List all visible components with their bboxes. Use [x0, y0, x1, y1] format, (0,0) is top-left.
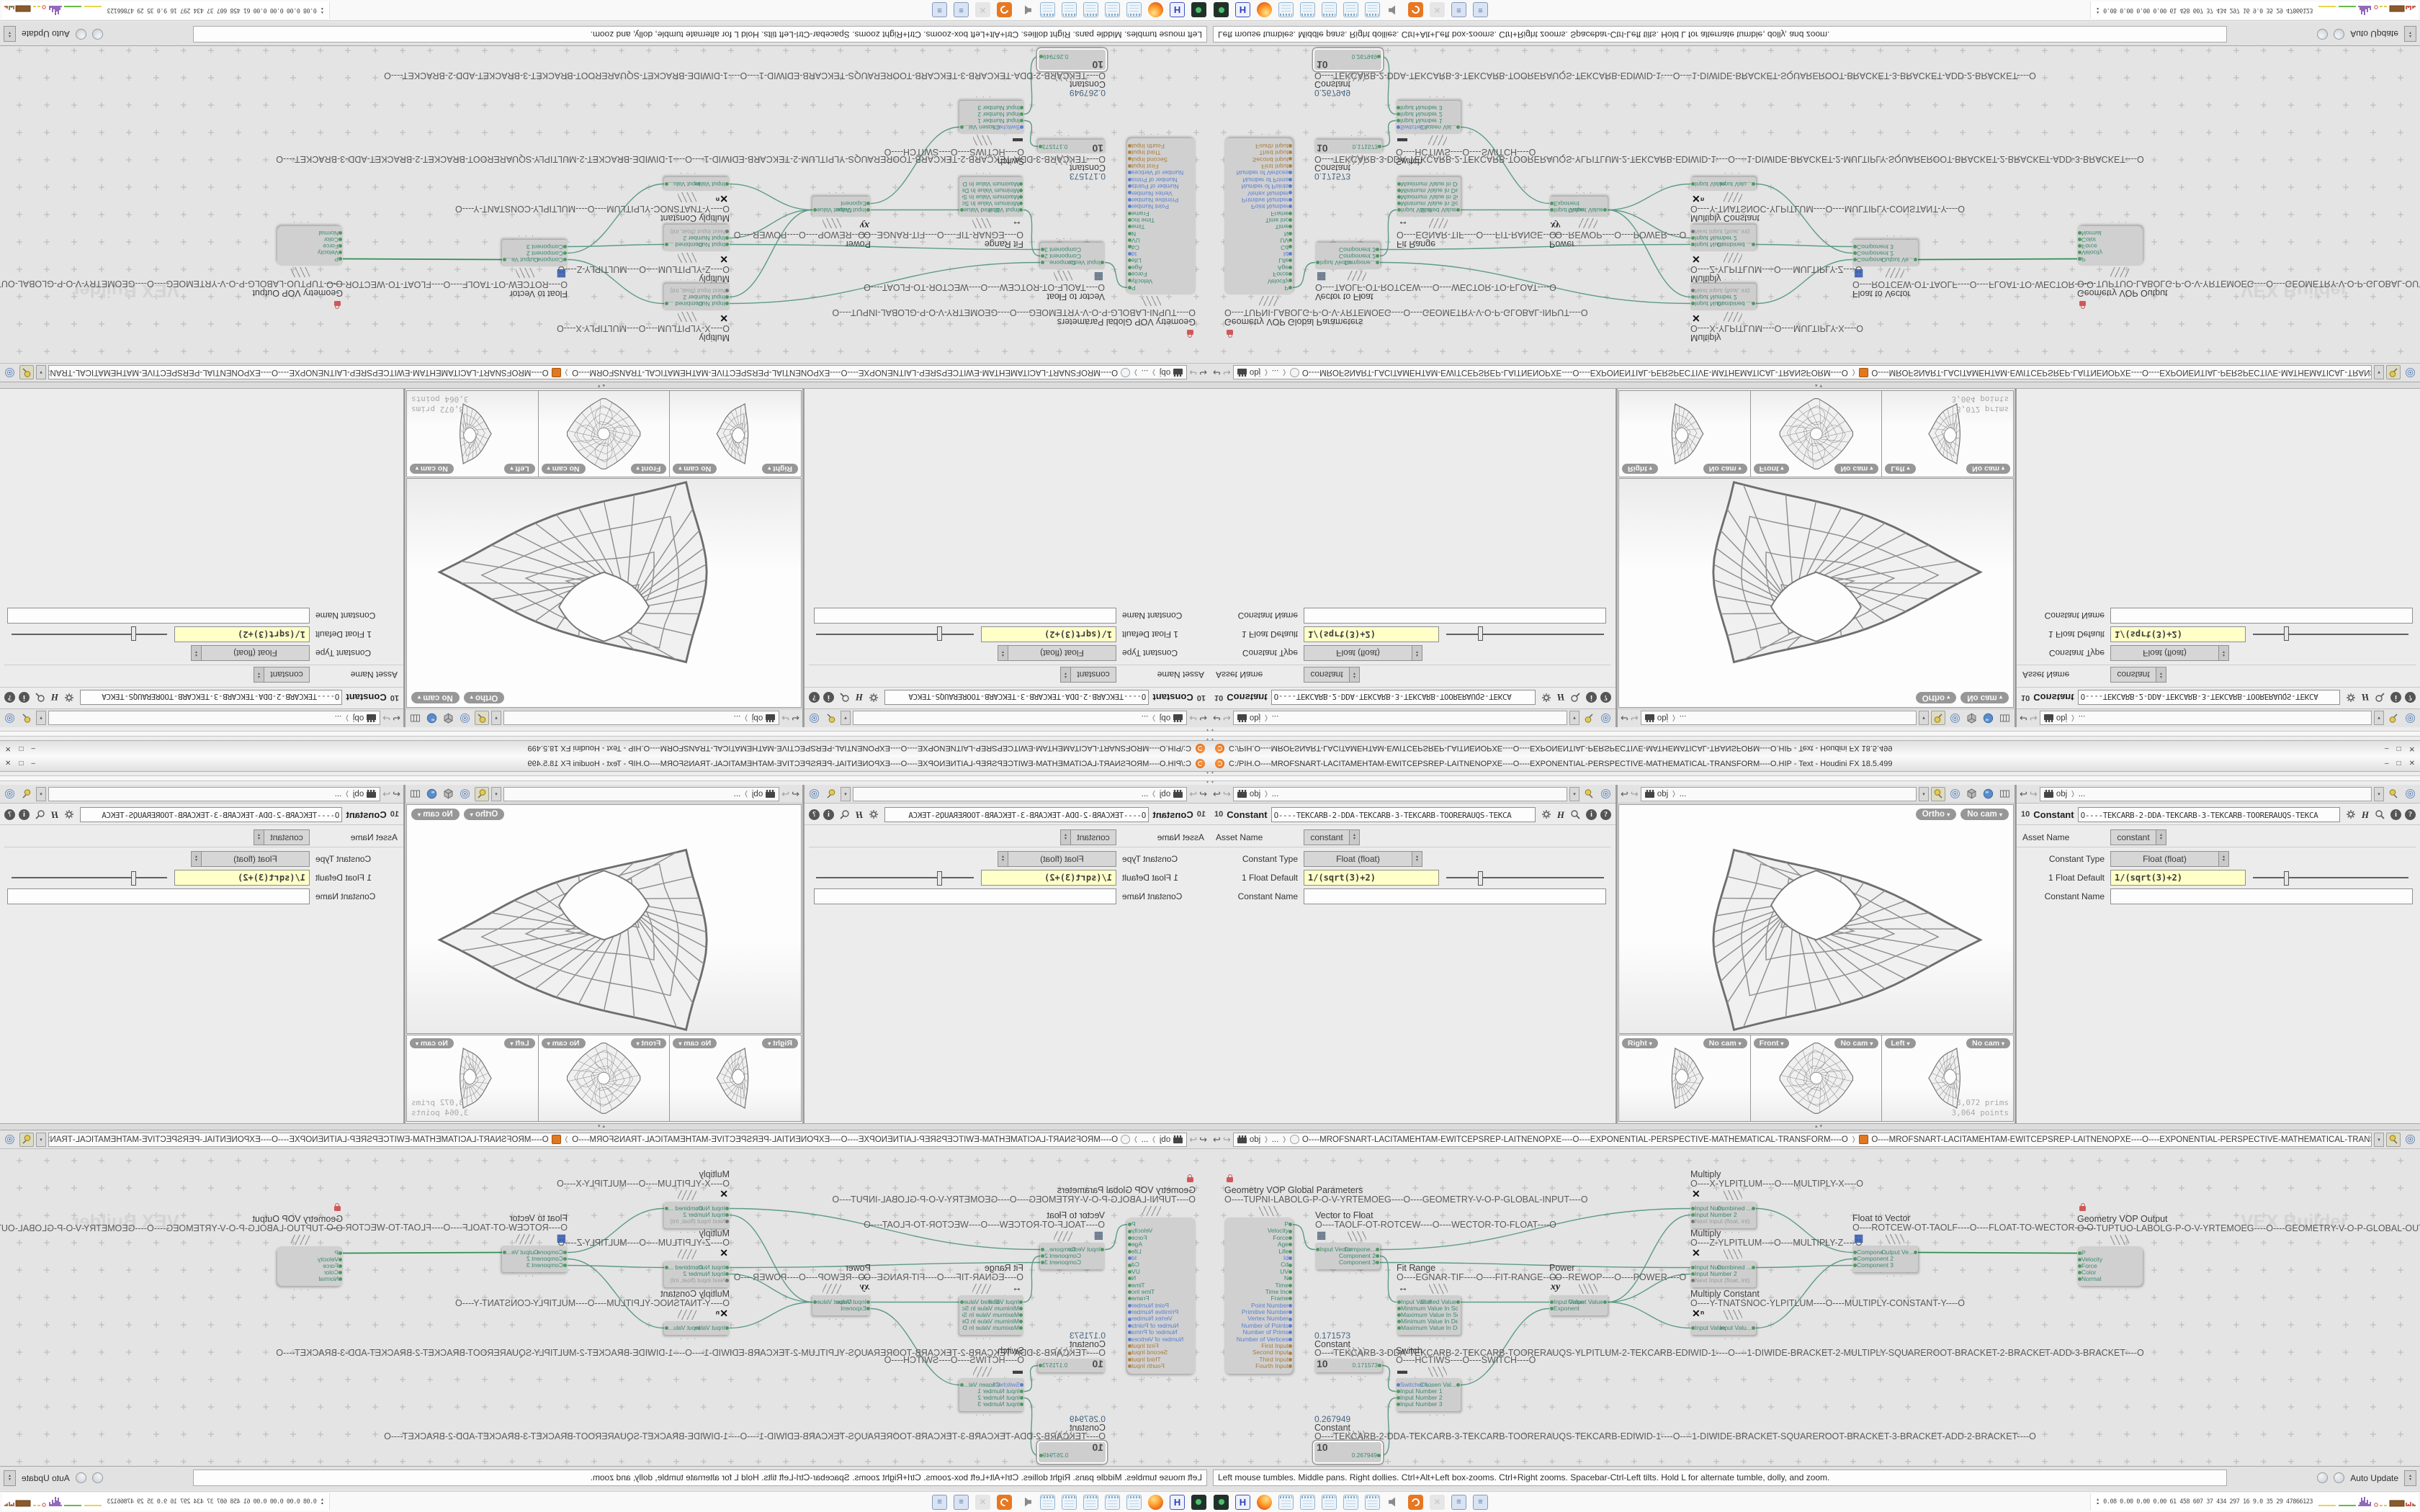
output-port[interactable]: Frame [1131, 210, 1149, 217]
path-dropdown-button[interactable]: ▾ [841, 787, 851, 801]
output-port[interactable]: 0.267949 [1352, 1452, 1377, 1459]
breadcrumb-segment[interactable]: ... [1142, 1135, 1149, 1144]
input-port[interactable]: Velocity [2081, 1256, 2102, 1263]
param-dropdown[interactable]: Float (float)▴▾ [191, 851, 310, 867]
camera-menu-button[interactable]: No cam ▾ [542, 464, 586, 474]
output-port[interactable]: Time Inc [1265, 217, 1289, 223]
output-port[interactable]: Second Input [1131, 156, 1168, 163]
projection-menu-button[interactable]: Ortho ▾ [464, 692, 505, 703]
sync-icon[interactable] [2334, 29, 2344, 40]
forward-icon[interactable]: ↪ [1223, 714, 1231, 723]
expand-shelf-icon[interactable]: ▾ [1211, 771, 1214, 775]
param-dropdown[interactable]: Float (float)▴▾ [1304, 851, 1422, 867]
search-icon[interactable] [838, 690, 852, 705]
collapsed-shelf-strip[interactable] [1210, 731, 2420, 736]
input-port[interactable]: Component 2 [1857, 1256, 1894, 1262]
output-port[interactable]: Output Value [1568, 1299, 1603, 1305]
breadcrumb-segment[interactable]: O----MROFSNART-LACITAMEHTAM-EWITCEPSREP-… [572, 369, 1118, 377]
node-name-field[interactable]: O----TEKCARB-2-DDA-TEKCARB-3-TEKCARB-TOO… [1271, 690, 1536, 706]
input-port[interactable]: Force [323, 243, 339, 249]
houdini-help-h-icon[interactable]: H [856, 693, 863, 703]
gear-icon[interactable] [866, 807, 881, 822]
vop-node-switch[interactable]: Switcher I...Chosen Val...Input Number 1… [1396, 1378, 1461, 1411]
input-port[interactable]: Input Number 2 [683, 1271, 725, 1277]
output-port[interactable]: P [1131, 284, 1136, 291]
node-footer-flags[interactable]: · · · [1142, 131, 1159, 138]
param-slider[interactable] [2253, 626, 2408, 642]
output-port[interactable]: Compone... [1044, 1246, 1076, 1253]
world-sphere-icon[interactable] [425, 711, 439, 726]
node-footer-flags[interactable]: · · · [1350, 132, 1368, 140]
globe-icon[interactable] [92, 29, 103, 40]
camera-menu-button[interactable]: No cam ▾ [1834, 1038, 1878, 1048]
notepad-icon[interactable] [1105, 3, 1120, 18]
path-dropdown-button[interactable]: ▾ [2374, 1133, 2384, 1147]
breadcrumb-more[interactable]: ... [1680, 790, 1687, 798]
link-radar-icon[interactable] [807, 711, 822, 726]
breadcrumb-root[interactable]: obj [2056, 714, 2067, 723]
forward-icon[interactable]: ↪ [1223, 1135, 1231, 1144]
vop-node-global[interactable]: PVelocityForceAgeLifeIdCdUVNTimeTime Inc… [1224, 138, 1293, 294]
output-port[interactable]: Velocity [1268, 278, 1289, 284]
node-footer-flags[interactable]: · · · [516, 233, 534, 240]
camera-menu-button[interactable]: No cam ▾ [411, 692, 460, 703]
houdini-help-h-icon[interactable]: H [856, 810, 863, 819]
sync-icon[interactable] [2334, 1472, 2344, 1483]
output-port[interactable]: Output Ve... [1881, 1249, 1914, 1256]
output-port[interactable]: Frame [1131, 1295, 1149, 1302]
param-dropdown[interactable]: constant▴▾ [1304, 829, 1360, 845]
breadcrumb[interactable]: obj ❭ ... [503, 711, 779, 726]
vop-node-c267[interactable]: 100.267949 [1314, 1442, 1381, 1462]
cube-display-icon[interactable] [1964, 711, 1978, 726]
breadcrumb-segment[interactable]: obj [1250, 1135, 1260, 1144]
input-port[interactable]: Minimum Value In Destina... [962, 187, 1019, 194]
search-icon[interactable] [2372, 807, 2387, 822]
output-port[interactable]: P [1131, 1221, 1136, 1228]
param-expression-field[interactable]: 1/(sqrt(3)+2) [2110, 626, 2246, 642]
output-port[interactable]: Time [1131, 223, 1145, 230]
left-viewport[interactable]: Left ▾ No cam ▾ 3,072 prims 3,064 points [1882, 1035, 2014, 1122]
node-footer-flags[interactable]: · · · [1724, 170, 1742, 177]
param-text-field[interactable] [7, 608, 310, 624]
viewport-layout-icon[interactable] [1997, 787, 2012, 801]
breadcrumb-segment[interactable]: O----MROFSNART-LACITAMEHTAM-EWITCEPSREP-… [1302, 369, 1848, 377]
node-footer-flags[interactable]: · · · [292, 1286, 309, 1293]
launcher-app-icon[interactable] [1214, 3, 1229, 18]
collapsed-shelf-strip[interactable]: ▾ [0, 736, 1210, 740]
minimize-button[interactable]: – [2385, 744, 2389, 752]
input-port[interactable]: Exponent [1554, 1305, 1579, 1312]
auto-update-dropdown[interactable]: ▴▾ [2404, 27, 2416, 42]
path-dropdown-button[interactable]: ▾ [491, 711, 501, 726]
param-text-field[interactable] [2110, 608, 2413, 624]
output-port[interactable]: Vertex Number [1131, 1315, 1173, 1322]
node-footer-flags[interactable]: · · · [1054, 235, 1072, 243]
expand-shelf-icon[interactable]: ▾ [1206, 737, 1209, 741]
info-icon[interactable]: i [823, 809, 834, 820]
tray-expand-icon[interactable]: ▴▴ [321, 1498, 323, 1506]
param-dropdown[interactable]: constant▴▾ [1060, 667, 1116, 683]
param-dropdown[interactable]: Float (float)▴▾ [1304, 645, 1422, 661]
vop-node-mulZ[interactable]: Input Num...Combined ...Input Number 2Ne… [1690, 1261, 1756, 1287]
notepad-icon[interactable] [1040, 3, 1055, 18]
vop-node-switch[interactable]: Switcher I...Chosen Val...Input Number 1… [959, 1378, 1024, 1411]
output-port[interactable]: Output Ve... [506, 1249, 539, 1256]
param-expression-field[interactable]: 1/(sqrt(3)+2) [2110, 870, 2246, 886]
vop-node-c267[interactable]: 100.267949 [1039, 50, 1106, 70]
input-port[interactable]: Maximum Value In Destina... [1401, 181, 1458, 187]
splitter-grip-icon[interactable]: ▴▾ [596, 382, 605, 388]
camera-menu-button[interactable]: No cam ▾ [1966, 464, 2010, 474]
path-dropdown-button[interactable]: ▾ [36, 1133, 46, 1147]
input-port[interactable]: Input Number 1 [1400, 117, 1443, 124]
vop-node-out[interactable]: PVelocityForceColorNormal [277, 226, 343, 266]
forward-icon[interactable]: ↪ [382, 714, 390, 723]
vop-node-mulX[interactable]: Input Num...Combined ...Input Number 2Ne… [1690, 1202, 1756, 1228]
vop-node-mulC[interactable]: Input ValueInput Valu... [1690, 177, 1756, 191]
output-port[interactable]: 0.171573 [1042, 1362, 1067, 1369]
vop-node-v2f[interactable]: Input VectorCompone...Component 2Compone… [1040, 1243, 1105, 1269]
node-footer-flags[interactable]: · · · [1350, 1372, 1368, 1380]
projection-menu-button[interactable]: Ortho ▾ [1916, 809, 1957, 820]
node-footer-flags[interactable]: · · · [1052, 132, 1070, 140]
notepad-icon[interactable] [1300, 3, 1315, 18]
breadcrumb-more[interactable]: ... [335, 714, 342, 723]
input-port[interactable]: Input Number 2 [1695, 294, 1737, 300]
output-port[interactable]: Combined ... [668, 300, 703, 307]
vop-node-mulZ[interactable]: Input Num...Combined ...Input Number 2Ne… [664, 225, 730, 251]
back-icon[interactable]: ↩ [1199, 714, 1207, 723]
breadcrumb-more[interactable]: ... [734, 714, 741, 723]
back-icon[interactable]: ↩ [1213, 368, 1221, 377]
input-port[interactable]: Velocity [318, 249, 339, 256]
breadcrumb-more[interactable]: ... [2079, 790, 2086, 798]
path-dropdown-button[interactable]: ▾ [1569, 787, 1579, 801]
gear-icon[interactable] [1539, 690, 1554, 705]
pin-icon[interactable] [1582, 787, 1596, 801]
breadcrumb-segment[interactable]: obj [1160, 369, 1170, 377]
output-port[interactable]: Number of Vertices [1237, 1336, 1289, 1343]
splitter-grip-icon[interactable]: ▴▾ [1815, 382, 1824, 388]
expand-shelf-icon[interactable]: ▾ [1206, 771, 1209, 775]
node-footer-flags[interactable]: · · · [1429, 1411, 1446, 1418]
forward-icon[interactable]: ↪ [2030, 714, 2038, 723]
window-title-bar[interactable]: C:/PIH.O----MROFSNART-LACITAMEHTAM-EWITC… [1210, 740, 2420, 756]
tray-expand-icon[interactable]: ▴▴ [2097, 6, 2099, 14]
link-radar-icon[interactable] [2403, 366, 2417, 380]
viewport-layout-icon[interactable] [408, 787, 423, 801]
breadcrumb-segment[interactable]: O----MROFSNART-LACITAMEHTAM-EWITCEPSREP-… [48, 1135, 549, 1144]
tray-expand-icon[interactable]: ▴▴ [2097, 1498, 2099, 1506]
node-footer-flags[interactable]: · · · [678, 170, 696, 177]
node-name-field[interactable]: O----TEKCARB-2-DDA-TEKCARB-3-TEKCARB-TOO… [2078, 807, 2340, 822]
output-port[interactable]: Point Number [1251, 1302, 1289, 1309]
inactive-app-icon[interactable]: ✕ [1430, 1495, 1445, 1510]
breadcrumb-root[interactable]: obj [1657, 714, 1668, 723]
perspective-viewport[interactable]: Ortho ▾ No cam ▾ [406, 478, 802, 708]
breadcrumb-root[interactable]: obj [752, 714, 763, 723]
inactive-app-icon[interactable]: ✕ [975, 3, 990, 18]
camera-menu-button[interactable]: No cam ▾ [542, 1038, 586, 1048]
output-port[interactable]: Velocity [1131, 1228, 1152, 1234]
collapsed-shelf-strip[interactable] [1210, 776, 2420, 781]
script-file-icon[interactable]: ≡ [932, 1495, 947, 1510]
breadcrumb-segment[interactable]: O----MROFSNART-LACITAMEHTAM-EWITCEPSREP-… [1871, 369, 2372, 377]
output-port[interactable]: Number of Vertices [1131, 1336, 1183, 1343]
output-port[interactable]: Input Valu... [668, 181, 701, 187]
notepad-icon[interactable] [1278, 1495, 1294, 1510]
camera-menu-button[interactable]: No cam ▾ [1960, 809, 2009, 820]
breadcrumb-segment[interactable]: obj [1160, 1135, 1170, 1144]
param-expression-field[interactable]: 1/(sqrt(3)+2) [174, 870, 310, 886]
input-port[interactable]: Color [2081, 236, 2096, 243]
output-port[interactable]: Component 3 [1339, 246, 1376, 253]
back-icon[interactable]: ↩ [1199, 1135, 1207, 1144]
search-icon[interactable] [33, 690, 48, 705]
collapsed-shelf-strip[interactable]: ▾ [1210, 736, 2420, 740]
path-dropdown-button[interactable]: ▾ [1919, 711, 1929, 726]
output-port[interactable]: Chosen Val... [1420, 124, 1456, 130]
node-footer-flags[interactable]: · · · [1429, 1335, 1446, 1342]
pin-icon[interactable] [475, 787, 489, 801]
back-icon[interactable]: ↩ [1199, 368, 1207, 377]
right-viewport[interactable]: Right ▾ No cam ▾ [1618, 1035, 1751, 1122]
output-port[interactable]: Cd [1281, 1261, 1289, 1268]
param-dropdown[interactable]: constant▴▾ [2110, 667, 2166, 683]
output-port[interactable]: Time Inc [1131, 217, 1155, 223]
input-port[interactable]: Force [2081, 243, 2097, 249]
forward-icon[interactable]: ↪ [781, 789, 789, 798]
minimize-button[interactable]: – [31, 760, 35, 768]
gear-icon[interactable] [62, 807, 76, 822]
input-port[interactable]: Input Number 2 [977, 111, 1020, 117]
sync-icon[interactable] [76, 29, 86, 40]
pin-icon[interactable] [475, 711, 489, 726]
vop-node-fit[interactable]: Input ValueShifted ValueMinimum Value In… [1397, 1295, 1461, 1335]
perspective-viewport[interactable]: Ortho ▾ No cam ▾ [1618, 478, 2014, 708]
link-radar-icon[interactable] [2403, 1133, 2417, 1147]
input-port[interactable]: Maximum Value In Source... [1401, 1312, 1458, 1318]
output-port[interactable]: Time [1275, 223, 1289, 230]
pin-icon[interactable] [19, 1133, 34, 1147]
node-footer-flags[interactable]: · · · [678, 1228, 696, 1236]
vop-node-global[interactable]: PVelocityForceAgeLifeIdCdUVNTimeTime Inc… [1127, 138, 1196, 294]
output-port[interactable]: Life [1131, 257, 1142, 264]
speaker-icon[interactable] [1018, 3, 1034, 18]
houdini-help-h-icon[interactable]: H [2362, 810, 2369, 819]
houdini-help-h-icon[interactable]: H [1557, 693, 1564, 703]
output-port[interactable]: Component 3 [1044, 246, 1081, 253]
output-port[interactable]: Primitive Number [1131, 1309, 1178, 1315]
vop-node-switch[interactable]: Switcher I...Chosen Val...Input Number 1… [1396, 101, 1461, 134]
houdini-help-h-icon[interactable]: H [2362, 693, 2369, 703]
network-breadcrumb[interactable]: obj❭...❭O----MROFSNART-LACITAMEHTAM-EWIT… [1233, 1133, 2372, 1147]
input-port[interactable]: P [334, 256, 339, 262]
input-port[interactable]: P [2081, 1250, 2086, 1256]
pin-icon[interactable] [1582, 711, 1596, 726]
network-breadcrumb[interactable]: obj❭...❭O----MROFSNART-LACITAMEHTAM-EWIT… [48, 366, 1187, 380]
camera-menu-button[interactable]: No cam ▾ [1703, 464, 1747, 474]
link-radar-icon[interactable] [2403, 711, 2417, 726]
speaker-icon[interactable] [1018, 1495, 1034, 1510]
output-port[interactable]: Combined ... [1717, 1264, 1752, 1271]
node-footer-flags[interactable]: · · · [1348, 1269, 1366, 1277]
output-port[interactable]: Point Number [1251, 203, 1289, 210]
link-radar-icon[interactable] [1948, 787, 1962, 801]
breadcrumb-root[interactable]: obj [1657, 790, 1668, 798]
info-icon[interactable]: i [1586, 693, 1597, 703]
forward-icon[interactable]: ↪ [1189, 714, 1197, 723]
pin-icon[interactable] [824, 787, 838, 801]
breadcrumb[interactable]: obj ❭ ... [1233, 787, 1567, 801]
forward-icon[interactable]: ↪ [1631, 789, 1639, 798]
vop-node-c171[interactable]: 100.171573 [1314, 1359, 1382, 1372]
input-port[interactable]: Normal [2081, 1276, 2101, 1282]
output-port[interactable]: Chosen Val... [964, 1382, 1000, 1388]
info-icon[interactable]: i [2390, 693, 2401, 703]
notepad-icon[interactable] [1040, 1495, 1055, 1510]
gear-icon[interactable] [2344, 690, 2358, 705]
info-icon[interactable]: i [19, 809, 30, 820]
front-viewport[interactable]: Front ▾ No cam ▾ [1751, 1035, 1883, 1122]
help-icon[interactable]: ? [809, 693, 820, 703]
vop-node-mulZ[interactable]: Input Num...Combined ...Input Number 2Ne… [1690, 225, 1756, 251]
node-footer-flags[interactable]: · · · [1052, 1372, 1070, 1380]
notepad-icon[interactable] [1343, 3, 1358, 18]
output-port[interactable]: Life [1278, 1248, 1289, 1255]
output-port[interactable]: Chosen Val... [964, 124, 1000, 130]
view-menu-button[interactable]: Left ▾ [1885, 464, 1915, 474]
vop-node-power[interactable]: Input ValueOutput ValueExponent [812, 197, 871, 217]
node-footer-flags[interactable]: · · · [1724, 1228, 1742, 1236]
output-port[interactable]: Frame [1270, 1295, 1289, 1302]
input-port[interactable]: Next Input (float, int) [1695, 1277, 1750, 1284]
output-port[interactable]: Output Value [817, 1299, 852, 1305]
close-button[interactable]: ✕ [5, 760, 11, 768]
input-port[interactable]: Component 2 [1857, 250, 1894, 256]
param-dropdown[interactable]: constant▴▾ [2110, 829, 2166, 845]
input-port[interactable]: Input Number 2 [683, 235, 725, 241]
input-port[interactable]: Input Number 2 [1695, 235, 1737, 241]
forward-icon[interactable]: ↪ [2030, 789, 2038, 798]
output-port[interactable]: Combined ... [668, 241, 703, 248]
forward-icon[interactable]: ↪ [1189, 789, 1197, 798]
output-port[interactable]: Combined ... [1717, 1205, 1752, 1212]
output-port[interactable]: Fourth Input [1131, 1363, 1165, 1369]
output-port[interactable]: First Input [1131, 163, 1159, 169]
maximize-button[interactable]: □ [2397, 744, 2401, 752]
back-icon[interactable]: ↩ [1213, 714, 1221, 723]
output-port[interactable]: Component 3 [1044, 1259, 1081, 1266]
script-file-icon[interactable]: ≡ [1451, 1495, 1466, 1510]
node-footer-flags[interactable]: · · · [292, 219, 309, 226]
output-port[interactable]: Component 2 [1339, 253, 1376, 259]
output-port[interactable]: Third Input [1259, 149, 1289, 156]
sync-icon[interactable] [76, 1472, 86, 1483]
back-icon[interactable]: ↩ [1199, 789, 1207, 798]
output-port[interactable]: Number of Points [1131, 1323, 1179, 1329]
output-port[interactable]: Fourth Input [1255, 143, 1289, 149]
back-icon[interactable]: ↩ [792, 714, 799, 723]
forward-icon[interactable]: ↪ [1223, 789, 1231, 798]
script-file-icon[interactable]: ≡ [1451, 3, 1466, 18]
notepad-icon[interactable] [1062, 1495, 1077, 1510]
output-port[interactable]: Second Input [1252, 1349, 1289, 1356]
forward-icon[interactable]: ↪ [382, 789, 390, 798]
output-port[interactable]: Age [1278, 264, 1289, 271]
input-port[interactable]: P [2081, 256, 2086, 262]
notepad-icon[interactable] [1126, 3, 1142, 18]
input-port[interactable]: Minimum Value In Source... [1401, 200, 1458, 207]
link-radar-icon[interactable] [1598, 787, 1613, 801]
camera-menu-button[interactable]: No cam ▾ [1834, 464, 1878, 474]
view-menu-button[interactable]: Left ▾ [504, 1038, 534, 1048]
vop-node-power[interactable]: Input ValueOutput ValueExponent [1549, 1295, 1608, 1315]
output-port[interactable]: N [1131, 1275, 1136, 1282]
output-port[interactable]: Output Value [1568, 207, 1603, 213]
maximize-button[interactable]: □ [19, 744, 23, 752]
node-footer-flags[interactable]: · · · [827, 1315, 844, 1323]
front-viewport[interactable]: Front ▾ No cam ▾ [538, 1035, 670, 1122]
view-menu-button[interactable]: Right ▾ [1622, 464, 1658, 474]
network-canvas[interactable]: VEX Builder Geometry VOP Global Paramete… [1210, 46, 2420, 362]
output-port[interactable]: Primitive Number [1131, 197, 1178, 203]
camera-menu-button[interactable]: No cam ▾ [673, 1038, 717, 1048]
back-icon[interactable]: ↩ [1621, 789, 1628, 798]
help-icon[interactable]: ? [4, 693, 15, 703]
breadcrumb-more[interactable]: ... [1272, 790, 1279, 798]
minimize-button[interactable]: – [31, 744, 35, 752]
output-port[interactable]: Frame [1270, 210, 1289, 217]
output-port[interactable]: N [1131, 230, 1136, 237]
front-viewport[interactable]: Front ▾ No cam ▾ [1751, 390, 1883, 477]
input-port[interactable]: Input Number 3 [977, 1401, 1020, 1408]
output-port[interactable]: Vertex Number [1247, 190, 1289, 197]
output-port[interactable]: Life [1131, 1248, 1142, 1255]
node-footer-flags[interactable]: · · · [2111, 1286, 2128, 1293]
output-port[interactable]: Shifted Value [964, 1299, 1000, 1305]
search-icon[interactable] [1568, 690, 1582, 705]
param-dropdown[interactable]: constant▴▾ [254, 667, 310, 683]
output-port[interactable]: Compone... [1344, 259, 1376, 266]
param-dropdown[interactable]: Float (float)▴▾ [2110, 645, 2229, 661]
node-footer-flags[interactable]: · · · [1053, 46, 1070, 50]
breadcrumb-more[interactable]: ... [734, 790, 741, 798]
output-port[interactable]: UV [1280, 237, 1289, 243]
breadcrumb[interactable]: obj ❭ ... [1641, 711, 1917, 726]
input-port[interactable]: Next Input (float, int) [670, 287, 725, 294]
output-port[interactable]: Number of Points [1241, 1323, 1289, 1329]
output-port[interactable]: Input Valu... [668, 1325, 701, 1331]
output-port[interactable]: Number of Vertices [1237, 169, 1289, 176]
output-port[interactable]: Id [1283, 1255, 1289, 1261]
node-footer-flags[interactable]: · · · [678, 1335, 696, 1342]
view-menu-button[interactable]: Right ▾ [762, 464, 798, 474]
pane-splitter[interactable]: ▴▾ [1210, 1123, 2420, 1130]
param-slider[interactable] [12, 870, 167, 886]
help-icon[interactable]: ? [809, 809, 820, 820]
back-icon[interactable]: ↩ [1213, 789, 1221, 798]
param-expression-field[interactable]: 1/(sqrt(3)+2) [981, 626, 1116, 642]
breadcrumb[interactable]: obj ❭ ... [853, 711, 1187, 726]
output-port[interactable]: Age [1131, 1241, 1142, 1248]
param-dropdown[interactable]: Float (float)▴▾ [998, 645, 1116, 661]
param-slider[interactable] [816, 626, 974, 642]
link-radar-icon[interactable] [3, 366, 17, 380]
maximize-button[interactable]: □ [19, 760, 23, 768]
param-slider[interactable] [1446, 626, 1604, 642]
